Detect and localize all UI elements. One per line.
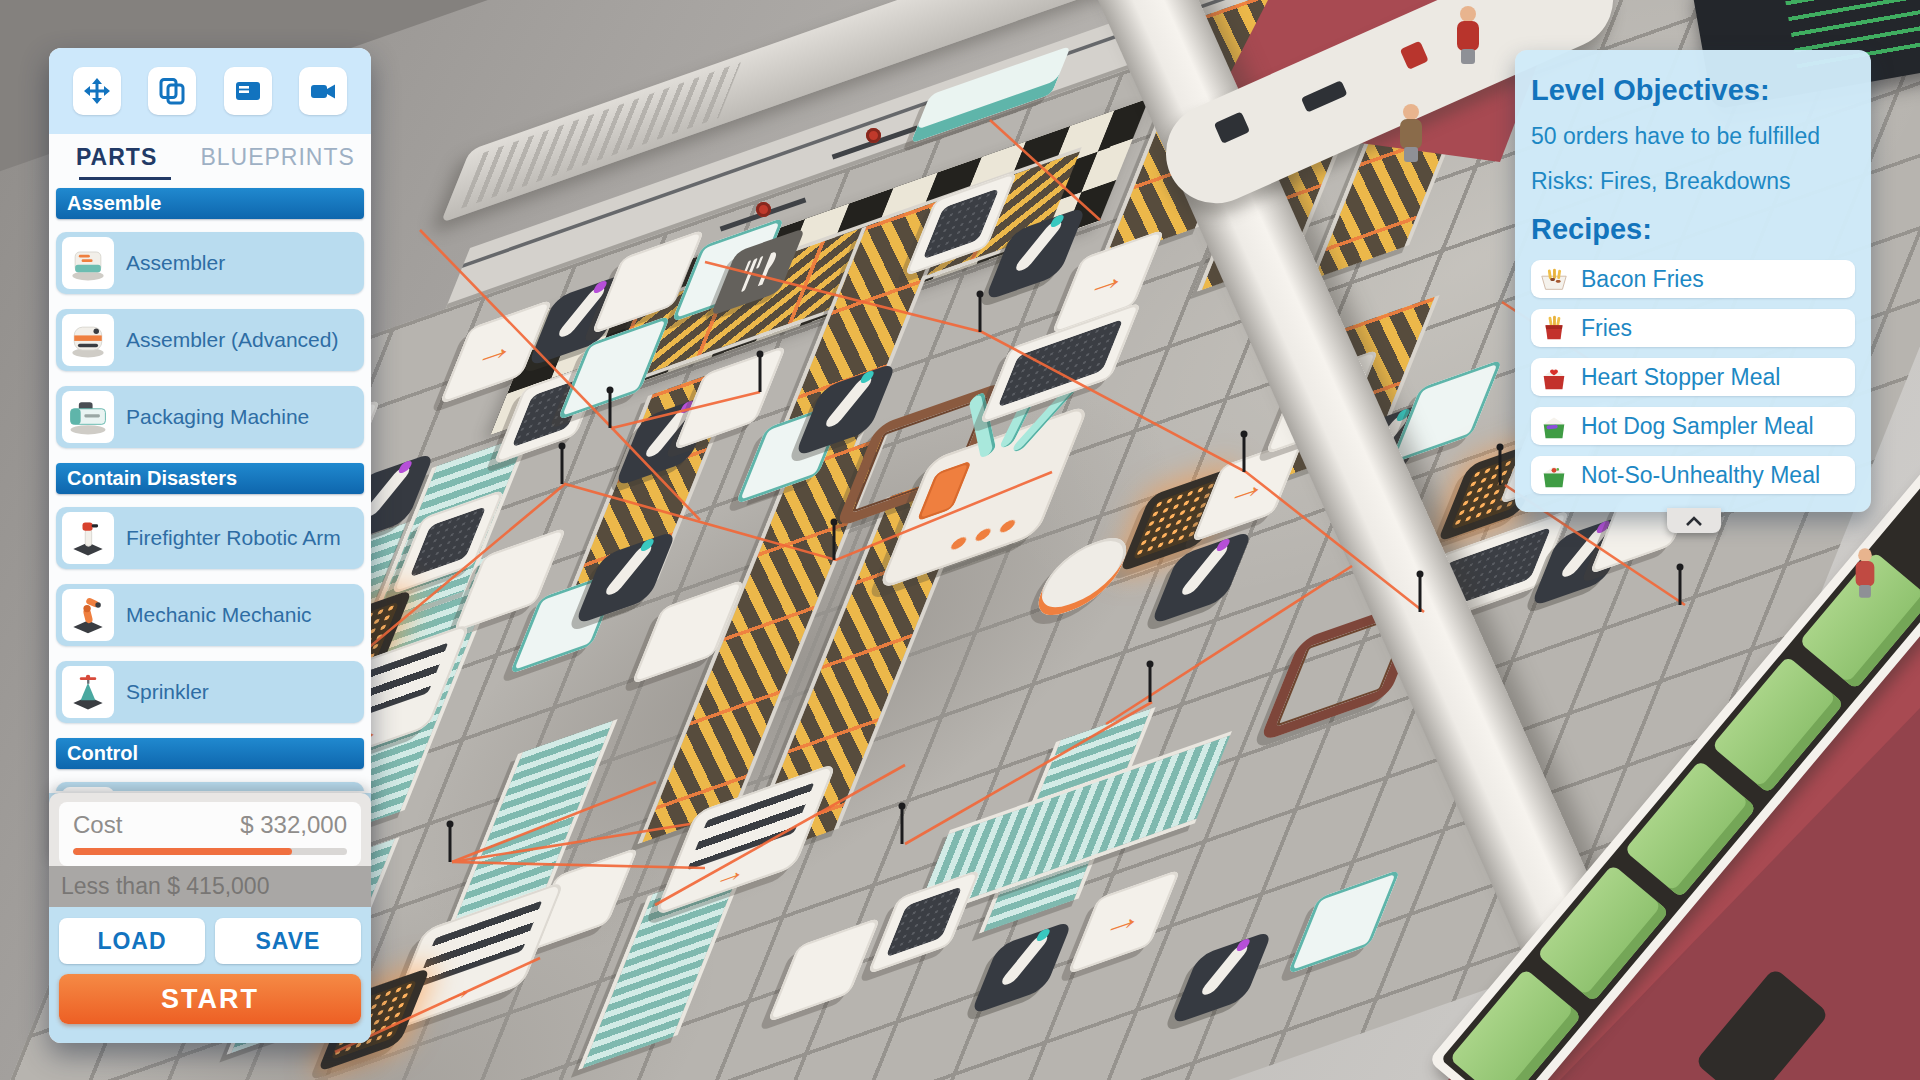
sidebar-footer: Cost $ 332,000 Less than $ 415,000 LOAD … <box>49 793 371 1043</box>
sidebar-toolbar <box>49 48 371 134</box>
risks-text: Risks: Fires, Breakdowns <box>1531 168 1855 195</box>
move-tool-button[interactable] <box>73 67 121 115</box>
part-label: Firefighter Robotic Arm <box>126 526 341 550</box>
sidebar-tabs: PARTS BLUEPRINTS <box>49 134 371 180</box>
pipe-valve <box>756 202 771 217</box>
recipe-item-bacon-fries[interactable]: Bacon Fries <box>1531 260 1855 298</box>
heart-stopper-meal-icon <box>1539 362 1569 392</box>
part-label: Mechanic Mechanic <box>126 603 312 627</box>
recipe-item-hot-dog-sampler-meal[interactable]: Hot Dog Sampler Meal <box>1531 407 1855 445</box>
packaging-machine-icon <box>66 395 110 439</box>
part-item-firefighter-robotic-arm[interactable]: Firefighter Robotic Arm <box>56 507 364 569</box>
move-icon <box>83 77 111 105</box>
start-button[interactable]: START <box>59 974 361 1024</box>
objective-text: 50 orders have to be fulfilled <box>1531 123 1855 150</box>
cost-progress-bar <box>73 848 347 855</box>
active-tab-underline <box>79 177 171 180</box>
cost-progress-fill <box>73 848 292 855</box>
part-icon-tile <box>62 512 114 564</box>
chevron-up-icon <box>1684 514 1704 528</box>
parts-sidebar: PARTS BLUEPRINTS Assemble Assembler <box>49 48 371 1043</box>
cost-value: $ 332,000 <box>240 811 347 839</box>
customer <box>1398 104 1424 162</box>
pipe-valve <box>866 128 881 143</box>
hot-dog-sampler-meal-icon <box>1539 411 1569 441</box>
section-header-control: Control <box>56 738 364 769</box>
part-item-sprinkler[interactable]: Sprinkler <box>56 661 364 723</box>
mechanic-mechanic-icon <box>66 593 110 637</box>
recipe-item-heart-stopper-meal[interactable]: Heart Stopper Meal <box>1531 358 1855 396</box>
load-button[interactable]: LOAD <box>59 918 205 964</box>
part-label: Assembler (Advanced) <box>126 328 338 352</box>
part-icon-tile <box>62 787 114 791</box>
customer <box>1854 548 1876 597</box>
recipes-title: Recipes: <box>1531 213 1855 246</box>
recipe-item-fries[interactable]: Fries <box>1531 309 1855 347</box>
part-item-mechanic-mechanic[interactable]: Mechanic Mechanic <box>56 584 364 646</box>
cost-label: Cost <box>73 811 122 839</box>
save-button[interactable]: SAVE <box>215 918 361 964</box>
camera-tool-button[interactable] <box>299 67 347 115</box>
assembler-icon <box>66 241 110 285</box>
part-label: Assembler <box>126 251 225 275</box>
parts-card-icon <box>234 77 262 105</box>
firefighter-robotic-arm-icon <box>66 516 110 560</box>
part-item-packaging-machine[interactable]: Packaging Machine <box>56 386 364 448</box>
recipe-label: Fries <box>1581 315 1632 342</box>
tab-parts[interactable]: PARTS <box>49 144 184 171</box>
load-save-row: LOAD SAVE <box>49 907 371 964</box>
part-icon-tile <box>62 237 114 289</box>
parts-list: Assemble Assembler <box>49 180 371 791</box>
part-icon-tile <box>62 589 114 641</box>
cost-limit-bar: Less than $ 415,000 <box>49 866 371 907</box>
cost-display: Cost $ 332,000 <box>49 793 371 866</box>
part-label: Sprinkler <box>126 680 209 704</box>
assembler-advanced-icon <box>66 318 110 362</box>
part-icon-tile <box>62 666 114 718</box>
part-icon-tile <box>62 391 114 443</box>
tab-blueprints[interactable]: BLUEPRINTS <box>184 144 371 171</box>
fries-icon <box>1539 313 1569 343</box>
part-icon-tile <box>62 314 114 366</box>
part-label: Packaging Machine <box>126 405 309 429</box>
camera-icon <box>309 77 337 105</box>
cost-card: Cost $ 332,000 <box>59 802 361 866</box>
panel-collapse-tab[interactable] <box>1667 508 1721 533</box>
sprinkler-icon <box>66 670 110 714</box>
recipe-label: Not-So-Unhealthy Meal <box>1581 462 1820 489</box>
recipe-label: Heart Stopper Meal <box>1581 364 1780 391</box>
copy-tool-button[interactable] <box>148 67 196 115</box>
part-item-control-cut[interactable] <box>56 782 364 791</box>
bacon-fries-icon <box>1539 264 1569 294</box>
part-item-assembler[interactable]: Assembler <box>56 232 364 294</box>
not-so-unhealthy-meal-icon <box>1539 460 1569 490</box>
parts-card-tool-button[interactable] <box>224 67 272 115</box>
section-header-contain-disasters: Contain Disasters <box>56 463 364 494</box>
copy-icon <box>158 77 186 105</box>
level-objectives-panel: Level Objectives: 50 orders have to be f… <box>1515 50 1871 512</box>
objectives-title: Level Objectives: <box>1531 74 1855 107</box>
customer <box>1455 6 1481 64</box>
recipe-label: Bacon Fries <box>1581 266 1704 293</box>
recipe-item-not-so-unhealthy-meal[interactable]: Not-So-Unhealthy Meal <box>1531 456 1855 494</box>
section-header-assemble: Assemble <box>56 188 364 219</box>
recipe-label: Hot Dog Sampler Meal <box>1581 413 1814 440</box>
part-item-assembler-advanced[interactable]: Assembler (Advanced) <box>56 309 364 371</box>
